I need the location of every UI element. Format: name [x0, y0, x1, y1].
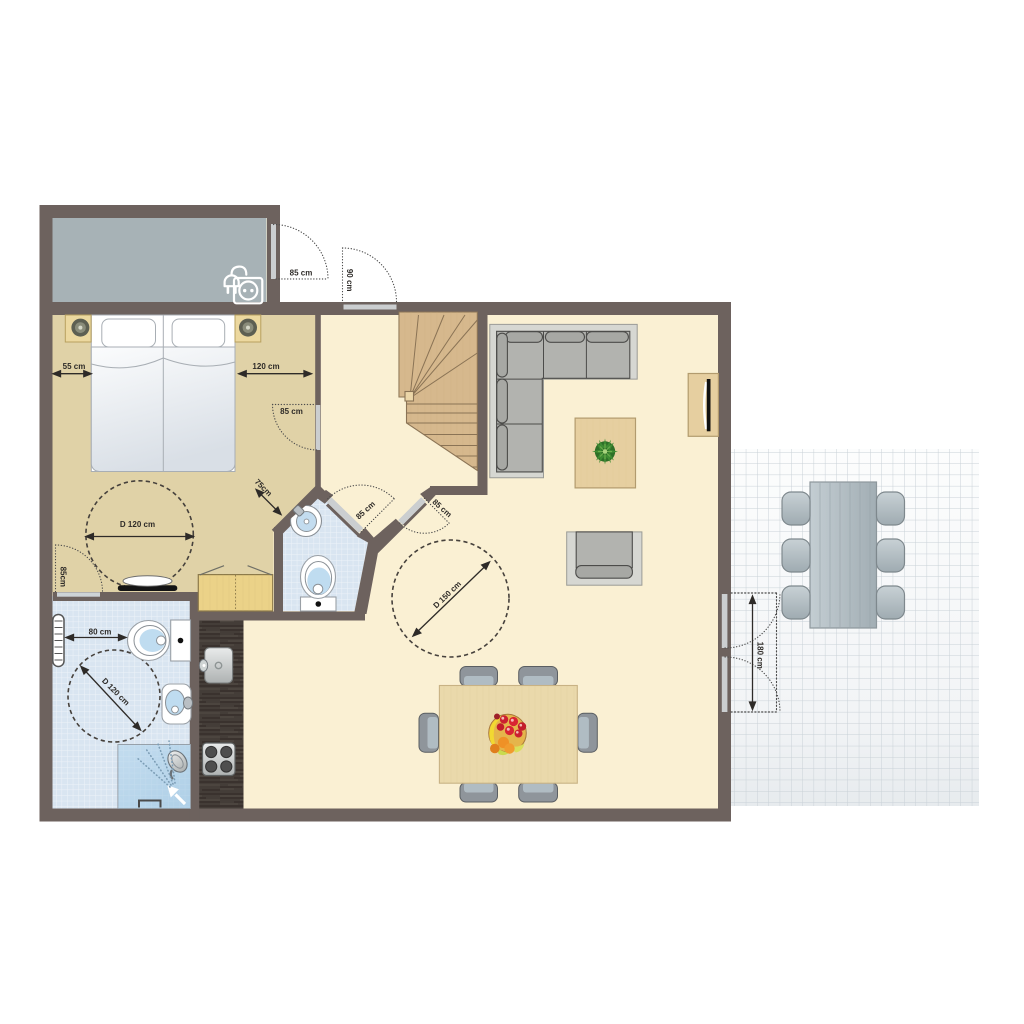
svg-text:85 cm: 85 cm [290, 269, 313, 278]
svg-text:85cm: 85cm [58, 567, 67, 587]
svg-text:180 cm: 180 cm [755, 642, 764, 669]
svg-text:D 120 cm: D 120 cm [120, 520, 155, 529]
svg-text:80 cm: 80 cm [89, 627, 112, 636]
svg-text:120 cm: 120 cm [252, 362, 279, 371]
svg-text:55 cm: 55 cm [63, 362, 86, 371]
svg-text:90 cm: 90 cm [345, 269, 354, 292]
svg-text:85 cm: 85 cm [280, 407, 303, 416]
